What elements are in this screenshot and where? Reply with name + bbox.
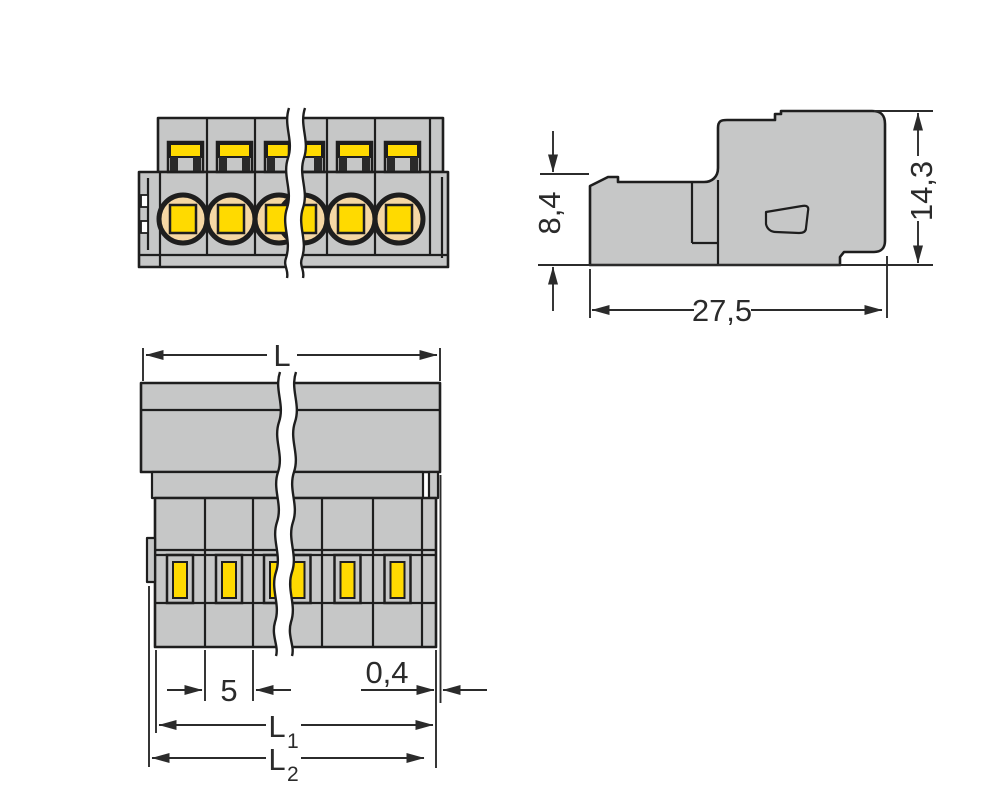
dim-label-end-offset: 0,4 [365,655,408,690]
dim-label-front-height: 8,4 [532,191,567,234]
dim-label-l2-sub: 2 [287,763,299,786]
drawing-canvas: 8,4 14,3 27,5 [0,0,1000,790]
bottom-side-tab [147,538,155,582]
dim-label-total-length: L [273,338,290,373]
front-view [139,108,448,278]
dim-label-l1-base: L [268,709,285,744]
dim-label-total-height: 14,3 [904,161,939,221]
front-break-lines [285,108,306,278]
left-latch-notch [141,221,148,233]
dim-label-pole-pitch: 5 [220,673,237,708]
connector-dimension-drawing: 8,4 14,3 27,5 [0,0,1000,790]
left-latch-notch [141,195,148,207]
dim-label-depth: 27,5 [692,293,752,328]
dim-label-l2-base: L [268,742,285,777]
bottom-collar-end [429,472,438,498]
dim-label-l1-sub: 1 [287,730,299,753]
side-latch-window [766,206,808,233]
